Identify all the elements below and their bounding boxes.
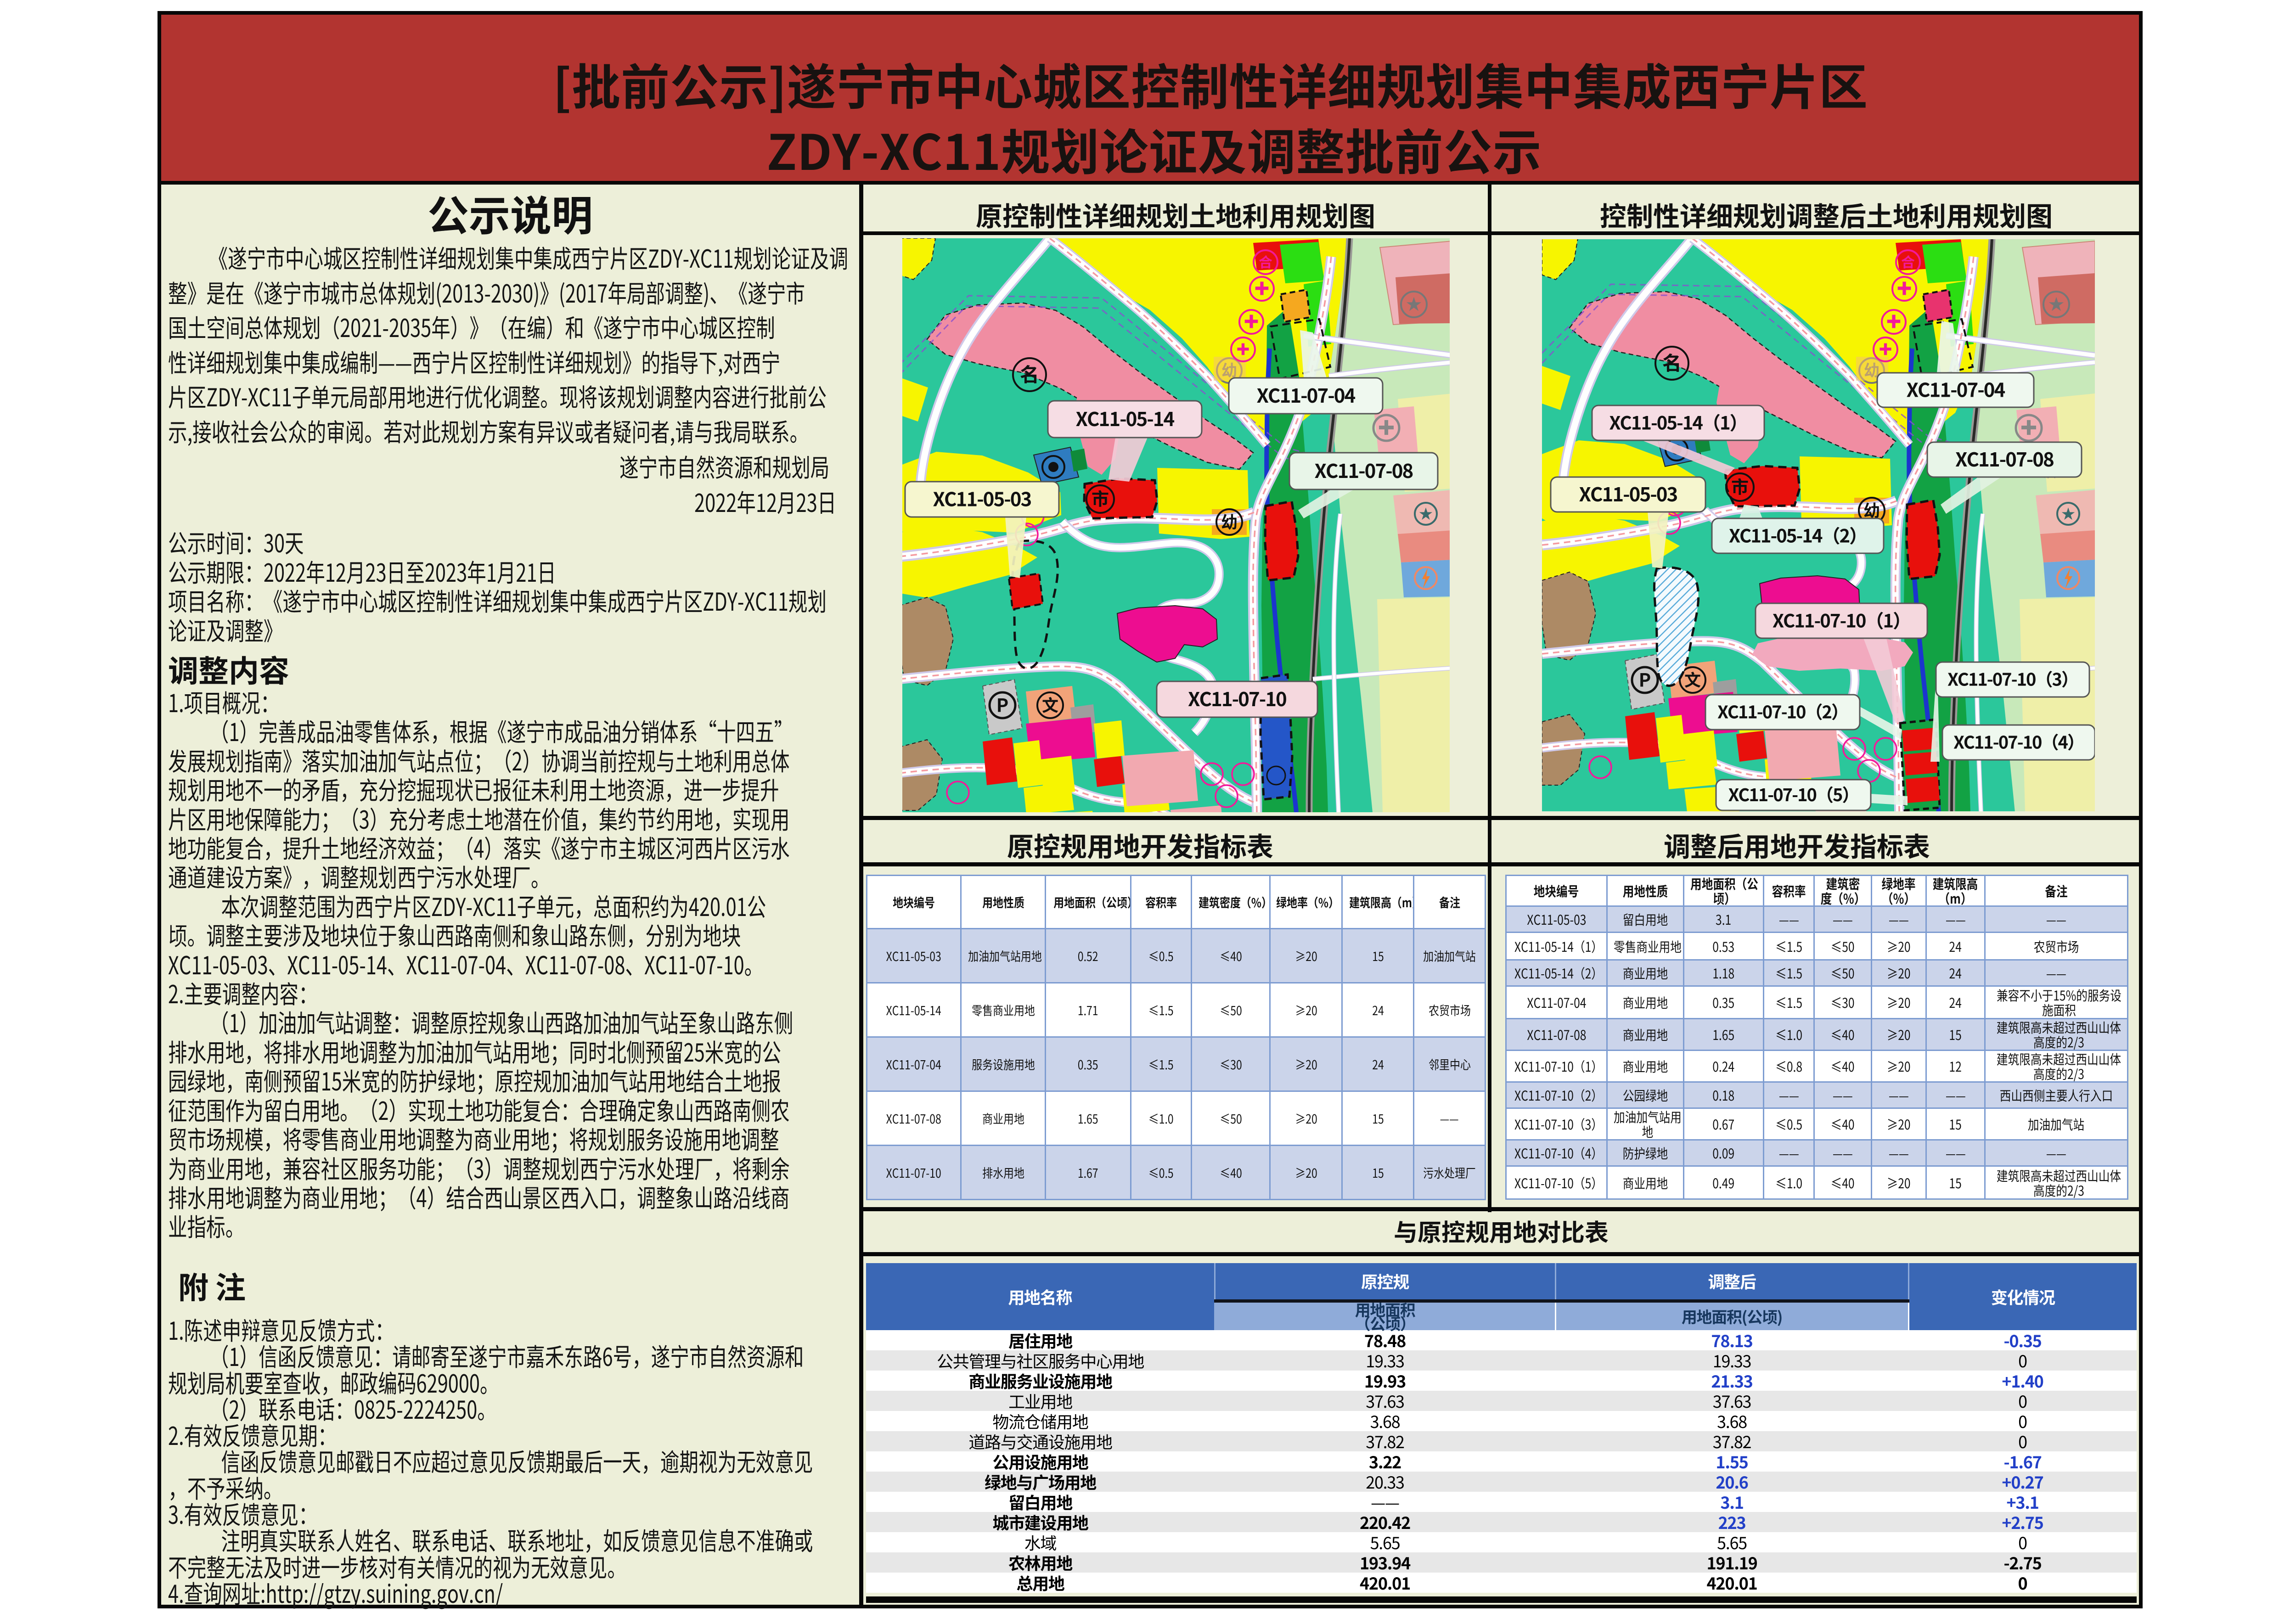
svg-text:合: 合 bbox=[1901, 251, 1915, 271]
svg-text:XC11-07-10（1）: XC11-07-10（1） bbox=[1773, 606, 1910, 633]
svg-text:✚: ✚ bbox=[2020, 414, 2037, 439]
svg-text:XC11-05-03: XC11-05-03 bbox=[933, 484, 1031, 512]
svg-text:XC11-07-10（4）: XC11-07-10（4） bbox=[1953, 729, 2084, 754]
svg-text:文: 文 bbox=[1684, 667, 1701, 691]
svg-text:文: 文 bbox=[1042, 692, 1058, 716]
svg-text:XC11-07-10（2）: XC11-07-10（2） bbox=[1717, 698, 1848, 724]
svg-text:✚: ✚ bbox=[1236, 338, 1250, 359]
svg-text:XC11-07-10（5）: XC11-07-10（5） bbox=[1728, 781, 1859, 806]
svg-text:★: ★ bbox=[1406, 292, 1422, 315]
svg-text:XC11-05-14: XC11-05-14 bbox=[1076, 404, 1175, 432]
svg-text:XC11-07-08: XC11-07-08 bbox=[1955, 444, 2054, 472]
svg-text:✚: ✚ bbox=[1886, 309, 1902, 332]
svg-text:XC11-05-14（2）: XC11-05-14（2） bbox=[1729, 521, 1867, 548]
svg-text:XC11-07-10（3）: XC11-07-10（3） bbox=[1947, 666, 2078, 691]
svg-text:XC11-05-03: XC11-05-03 bbox=[1579, 479, 1677, 507]
svg-text:XC11-07-04: XC11-07-04 bbox=[1257, 381, 1356, 409]
svg-text:XC11-07-10: XC11-07-10 bbox=[1188, 684, 1286, 712]
svg-text:XC11-07-04: XC11-07-04 bbox=[1907, 375, 2005, 403]
svg-text:★: ★ bbox=[2048, 292, 2064, 315]
svg-text:✚: ✚ bbox=[1254, 276, 1270, 299]
svg-text:✚: ✚ bbox=[1378, 414, 1395, 439]
svg-text:市: 市 bbox=[1092, 485, 1109, 511]
svg-text:✚: ✚ bbox=[1896, 276, 1912, 299]
svg-text:✚: ✚ bbox=[1244, 309, 1259, 332]
svg-text:市: 市 bbox=[1731, 473, 1749, 499]
svg-text:合: 合 bbox=[1259, 251, 1272, 271]
svg-text:名: 名 bbox=[1020, 360, 1039, 388]
svg-text:XC11-07-08: XC11-07-08 bbox=[1315, 456, 1413, 484]
svg-text:XC11-05-14（1）: XC11-05-14（1） bbox=[1609, 408, 1747, 435]
svg-text:★: ★ bbox=[1419, 503, 1433, 523]
svg-text:✚: ✚ bbox=[1879, 338, 1892, 359]
svg-text:★: ★ bbox=[2061, 503, 2075, 523]
svg-text:名: 名 bbox=[1662, 348, 1682, 376]
svg-text:P: P bbox=[996, 691, 1009, 717]
svg-text:幼: 幼 bbox=[1221, 509, 1238, 533]
svg-text:P: P bbox=[1639, 665, 1651, 692]
